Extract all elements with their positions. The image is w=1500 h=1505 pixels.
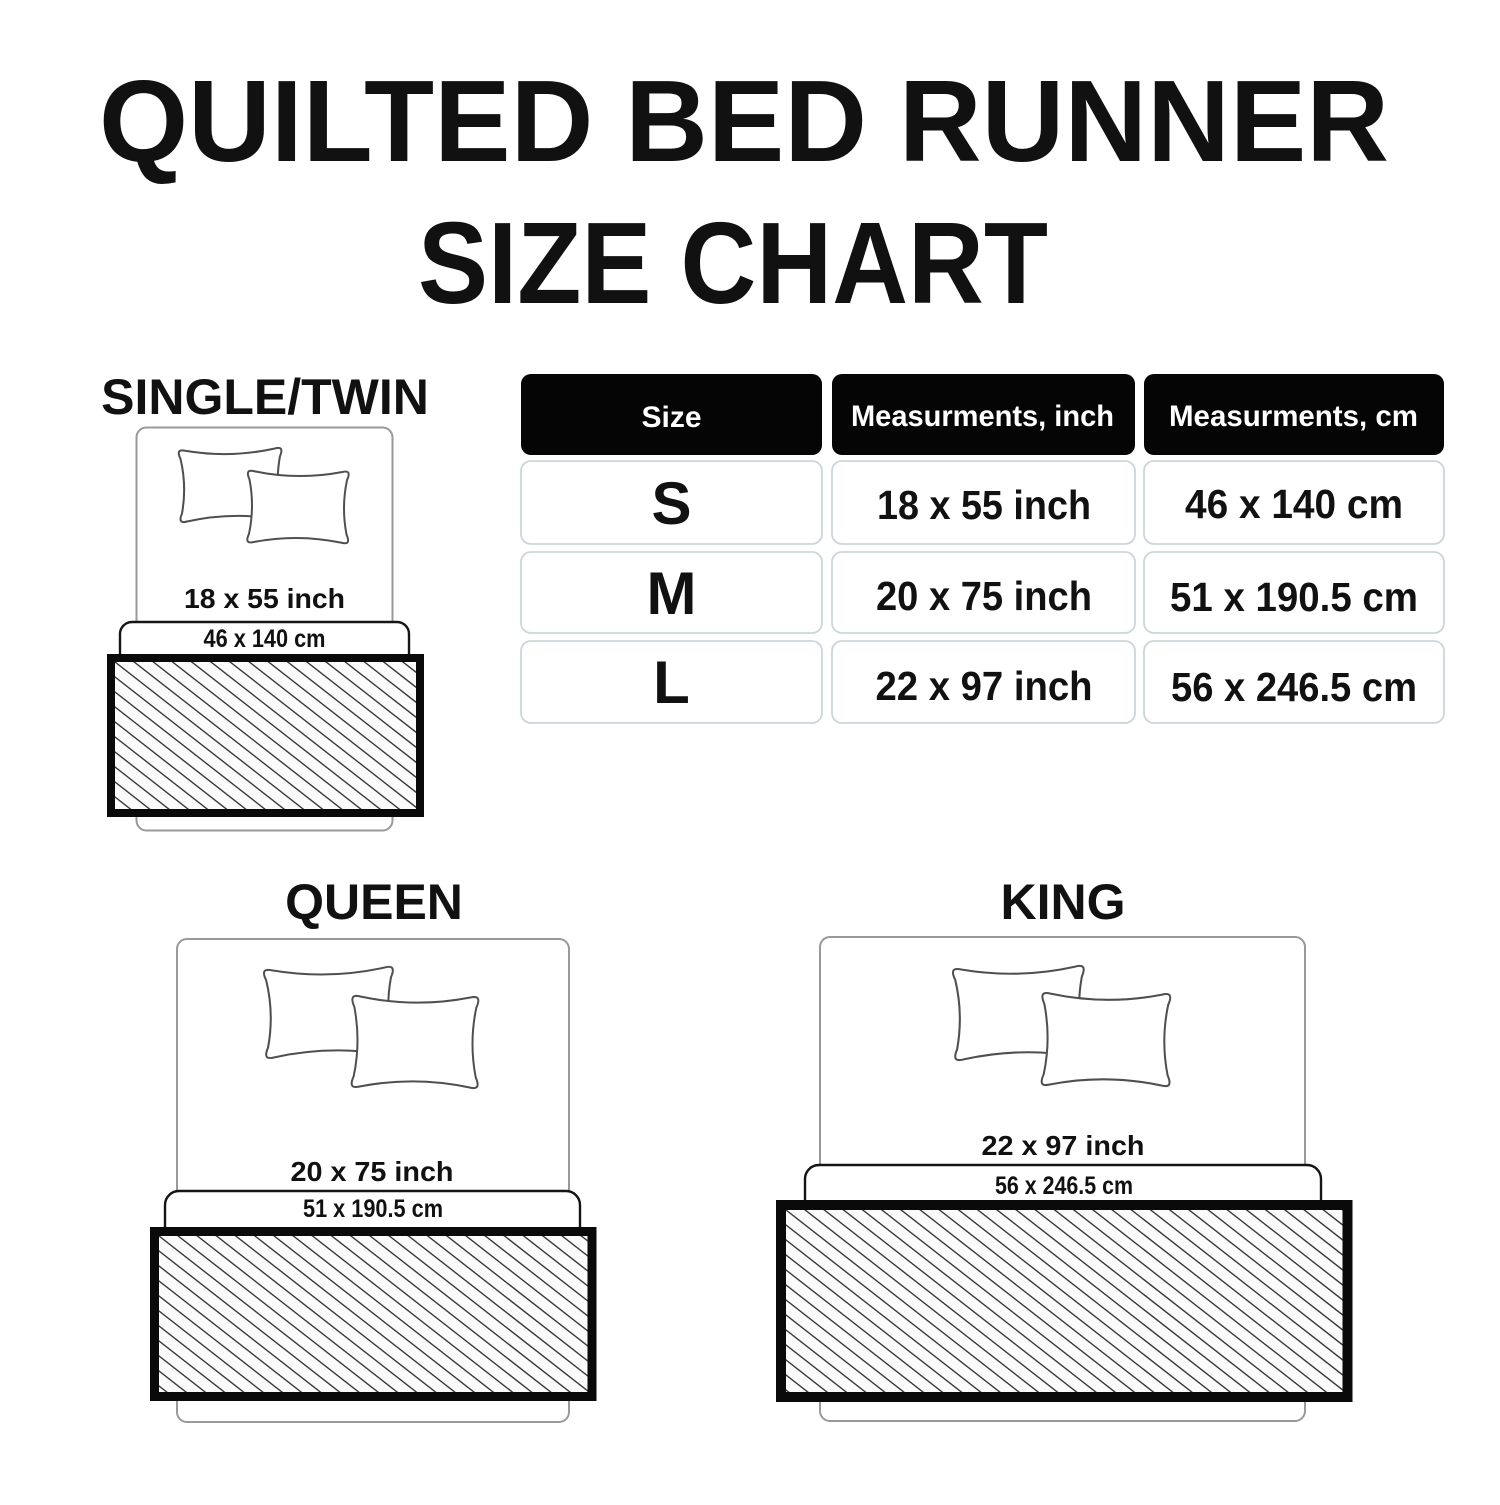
svg-text:S: S: [651, 470, 691, 537]
svg-text:51 x 190.5 cm: 51 x 190.5 cm: [303, 1195, 443, 1223]
svg-text:56 x 246.5 cm: 56 x 246.5 cm: [995, 1172, 1133, 1200]
svg-text:46 x 140 cm: 46 x 140 cm: [204, 625, 326, 653]
svg-text:QUILTED BED RUNNER: QUILTED BED RUNNER: [99, 56, 1389, 186]
svg-text:46 x 140 cm: 46 x 140 cm: [1185, 481, 1403, 527]
svg-text:20 x 75 inch: 20 x 75 inch: [291, 1156, 454, 1187]
svg-text:QUEEN: QUEEN: [285, 874, 463, 930]
svg-text:22 x 97 inch: 22 x 97 inch: [982, 1130, 1145, 1161]
svg-text:SIZE CHART: SIZE CHART: [418, 198, 1048, 328]
svg-text:22 x 97 inch: 22 x 97 inch: [876, 663, 1093, 709]
svg-text:Measurments, cm: Measurments, cm: [1169, 400, 1418, 433]
svg-text:18 x 55 inch: 18 x 55 inch: [877, 482, 1091, 528]
svg-text:Measurments, inch: Measurments, inch: [851, 400, 1114, 433]
svg-text:20 x 75 inch: 20 x 75 inch: [876, 573, 1092, 619]
svg-text:L: L: [653, 649, 690, 716]
svg-text:M: M: [647, 560, 697, 627]
svg-text:18 x 55 inch: 18 x 55 inch: [184, 583, 345, 614]
svg-text:SINGLE/TWIN: SINGLE/TWIN: [101, 369, 429, 425]
svg-text:KING: KING: [1001, 874, 1126, 930]
svg-text:Size: Size: [641, 401, 701, 434]
svg-text:56 x 246.5 cm: 56 x 246.5 cm: [1171, 664, 1417, 710]
svg-text:51 x 190.5 cm: 51 x 190.5 cm: [1170, 574, 1418, 620]
